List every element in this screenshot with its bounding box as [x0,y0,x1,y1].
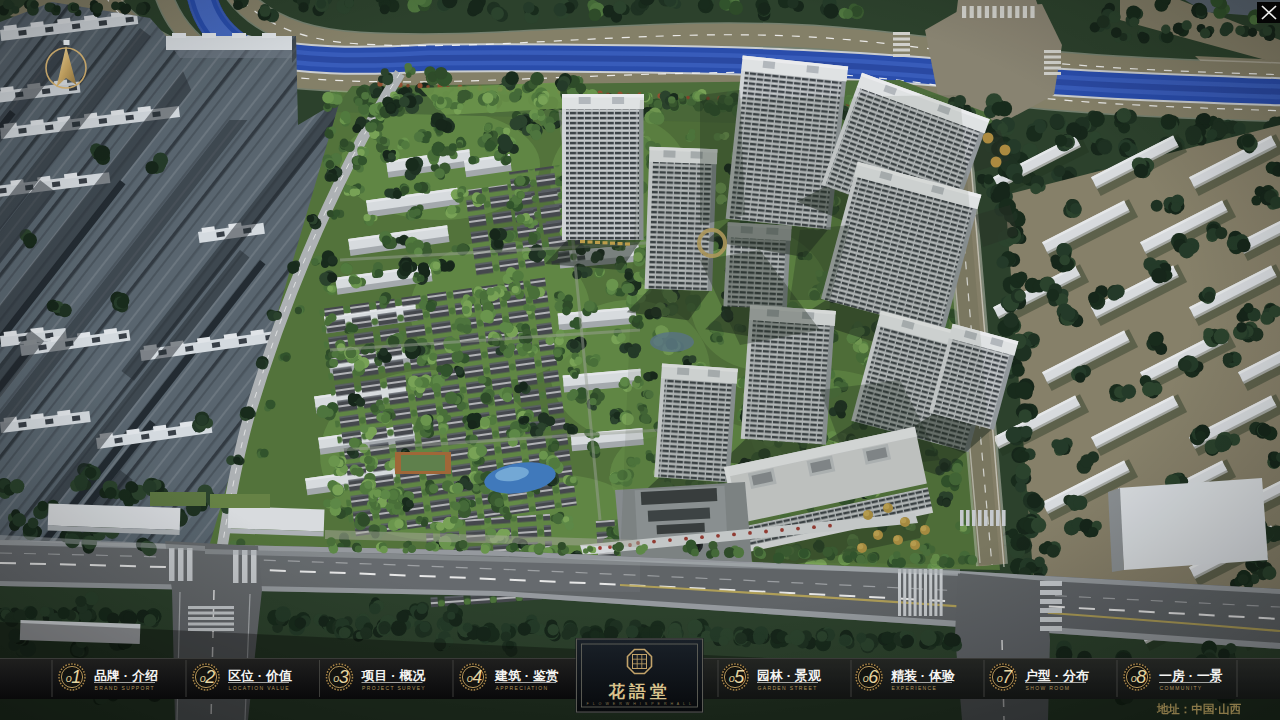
svg-text:园林 · 景观: 园林 · 景观 [757,668,822,683]
svg-text:5: 5 [734,667,745,687]
svg-text:GARDEN STREET: GARDEN STREET [758,685,818,691]
svg-text:LOCATION VALUE: LOCATION VALUE [229,685,291,691]
svg-text:PROJECT SURVEY: PROJECT SURVEY [362,685,426,691]
svg-text:品牌 · 介绍: 品牌 · 介绍 [94,668,158,683]
svg-text:2: 2 [204,667,215,687]
svg-text:4: 4 [472,667,482,687]
svg-text:COMMUNITY: COMMUNITY [1160,685,1203,691]
svg-text:3: 3 [339,667,349,687]
svg-text:花語堂: 花語堂 [608,682,671,700]
svg-text:EXPERIENCE: EXPERIENCE [892,685,938,691]
svg-text:项目 · 概况: 项目 · 概况 [361,668,426,683]
svg-text:户型 · 分布: 户型 · 分布 [1024,668,1089,683]
svg-text:区位 · 价值: 区位 · 价值 [228,668,292,683]
svg-text:地址：中国·山西: 地址：中国·山西 [1156,703,1242,715]
svg-text:BRAND SUPPORT: BRAND SUPPORT [95,685,156,691]
svg-text:APPRECIATION: APPRECIATION [496,685,549,691]
svg-text:建筑 · 鉴赏: 建筑 · 鉴赏 [494,668,559,683]
svg-text:SHOW ROOM: SHOW ROOM [1026,685,1071,691]
svg-text:F L O W E R W H I S P E R: F L O W E R W H I S P E R H A L L [587,702,693,706]
svg-text:8: 8 [1136,667,1146,687]
svg-text:7: 7 [1002,667,1013,687]
svg-text:6: 6 [868,667,879,687]
svg-text:精装 · 体验: 精装 · 体验 [890,668,955,683]
svg-text:1: 1 [71,667,81,687]
svg-text:一房 · 一景: 一房 · 一景 [1159,668,1223,683]
